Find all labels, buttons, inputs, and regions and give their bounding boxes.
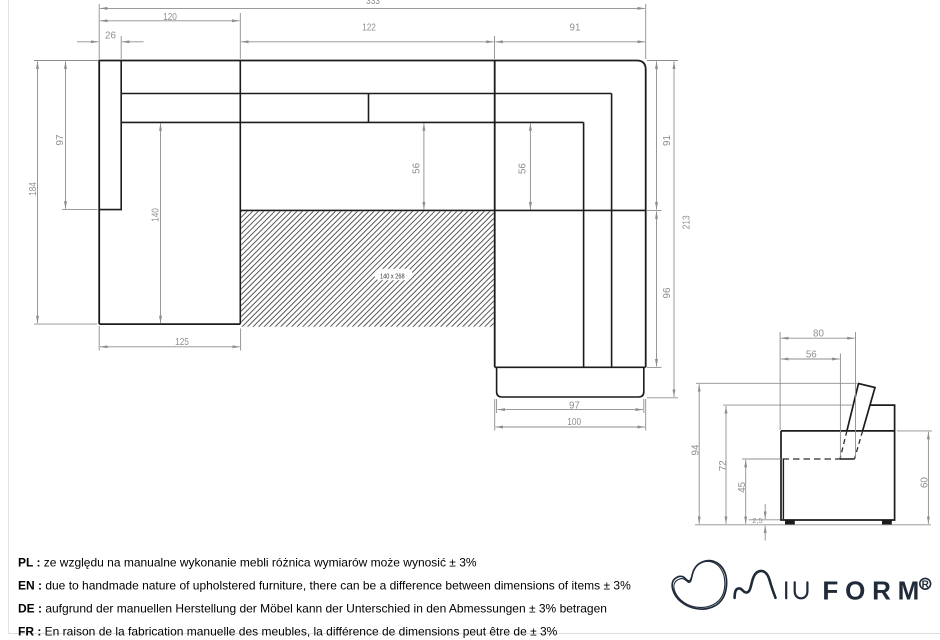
- svg-text:213: 213: [682, 215, 693, 229]
- svg-text:122: 122: [362, 22, 376, 33]
- svg-text:56: 56: [517, 163, 528, 174]
- svg-text:26: 26: [105, 30, 116, 41]
- svg-text:120: 120: [163, 12, 177, 23]
- svg-text:FR : En raison de la fabricati: FR : En raison de la fabrication manuell…: [18, 624, 558, 638]
- svg-text:72: 72: [718, 460, 729, 471]
- svg-text:140 x 268: 140 x 268: [380, 274, 405, 281]
- svg-text:EN : due to handmade nature of: EN : due to handmade nature of upholster…: [18, 579, 631, 593]
- svg-text:R: R: [922, 580, 930, 591]
- svg-text:97: 97: [55, 134, 66, 145]
- svg-text:45: 45: [737, 482, 748, 493]
- svg-text:91: 91: [662, 135, 673, 146]
- svg-text:DE : aufgrund der manuellen He: DE : aufgrund der manuellen Herstellung …: [18, 601, 607, 615]
- svg-text:94: 94: [690, 444, 701, 455]
- svg-text:97: 97: [569, 401, 580, 412]
- svg-text:60: 60: [919, 477, 930, 488]
- svg-text:2,5: 2,5: [752, 516, 763, 525]
- svg-text:80: 80: [813, 329, 824, 340]
- svg-text:FORM: FORM: [822, 576, 926, 606]
- svg-text:125: 125: [175, 337, 189, 348]
- svg-text:96: 96: [662, 287, 673, 298]
- svg-text:91: 91: [570, 22, 581, 33]
- svg-text:184: 184: [28, 182, 39, 196]
- svg-text:56: 56: [806, 350, 817, 361]
- svg-text:140: 140: [150, 208, 161, 222]
- svg-text:100: 100: [567, 417, 581, 428]
- svg-text:333: 333: [366, 0, 380, 7]
- svg-text:56: 56: [412, 163, 423, 174]
- svg-text:PL : ze względu na manualne wy: PL : ze względu na manualne wykonanie me…: [18, 556, 477, 570]
